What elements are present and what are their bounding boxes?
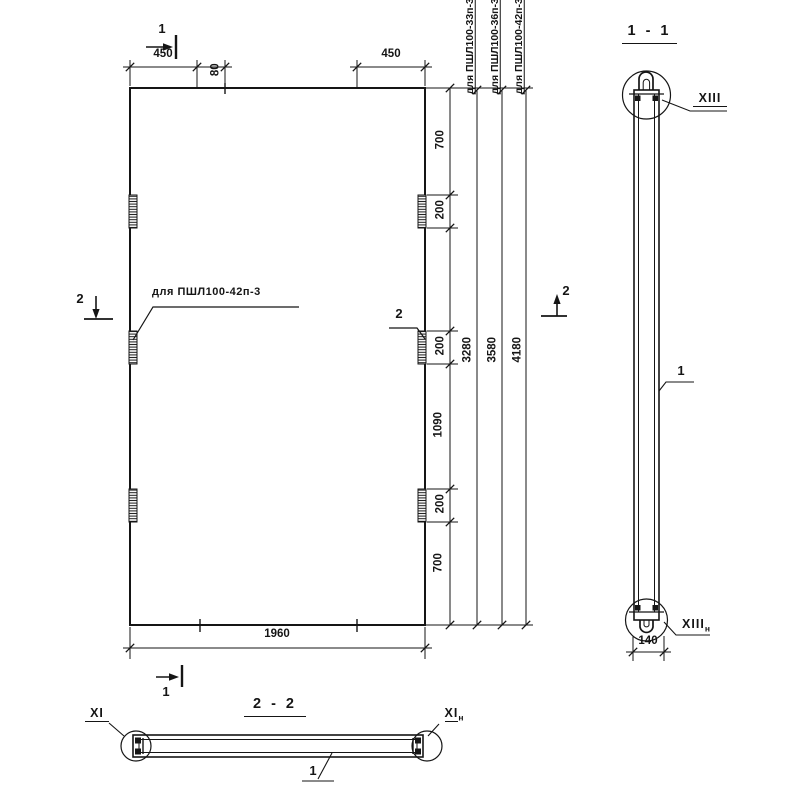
section-2-2-ref-1: 1 [306, 764, 320, 777]
dim-overall-3580: 3580 [487, 328, 499, 372]
detail-xi-right: XIн [437, 707, 471, 722]
dim-chain-1090: 1090 [433, 403, 445, 447]
dim-140: 140 [630, 636, 666, 648]
detail-xiii-bottom-sub: н [705, 623, 710, 633]
drawing-sheet: 450 80 450 1 1 2 2 для ПШЛ100-42п-3 2 70… [0, 0, 800, 800]
section-mark-2-right-label: 2 [558, 284, 574, 297]
dim-450-left: 450 [145, 49, 181, 61]
section-1-1-ref-1: 1 [674, 364, 688, 377]
section-mark-1-top-label: 1 [154, 22, 170, 35]
dim-80: 80 [210, 55, 222, 85]
dim-chain-700-top: 700 [435, 120, 447, 160]
section-1-1-title: 1 - 1 [622, 24, 677, 44]
section-1-1-body [623, 71, 671, 641]
drawing-linework [0, 0, 800, 800]
dim-overall-4180: 4180 [512, 328, 524, 372]
variant-label-42: для ПШЛ100-42п-3 [514, 0, 525, 101]
section-mark-1-bottom-label: 1 [158, 685, 174, 698]
dim-chain-200-bottom: 200 [435, 484, 447, 524]
dim-overall-3280: 3280 [462, 328, 474, 372]
plan-panel-outline [130, 83, 425, 632]
detail-xi-right-main: XI [445, 706, 459, 722]
detail-xiii-bottom: XIIIн [676, 618, 716, 633]
dim-450-right: 450 [373, 49, 409, 61]
dim-chain-200-mid: 200 [435, 326, 447, 366]
dim-chain-700-bottom: 700 [433, 543, 445, 583]
detail-xi-right-sub: н [458, 712, 463, 722]
section-2-2-title: 2 - 2 [244, 697, 306, 717]
detail-xiii-top: XIII [693, 92, 727, 107]
section-2-2-body [121, 731, 442, 761]
dim-1960: 1960 [249, 629, 305, 641]
section-mark-2-left [84, 296, 113, 319]
section-mark-2-left-label: 2 [72, 292, 88, 305]
variant-label-33: для ПШЛ100-33п-3 [465, 0, 476, 101]
detail-xiii-bottom-main: XIII [682, 617, 705, 632]
variant-label-36: для ПШЛ100-36п-3 [490, 0, 501, 101]
section-1-1-leaders [659, 100, 727, 635]
weld-plate-callout-2: 2 [392, 307, 406, 320]
variant-callout-label: для ПШЛ100-42п-3 [152, 287, 282, 298]
detail-xi-left: XI [85, 707, 109, 722]
dim-chain-200-top: 200 [435, 190, 447, 230]
